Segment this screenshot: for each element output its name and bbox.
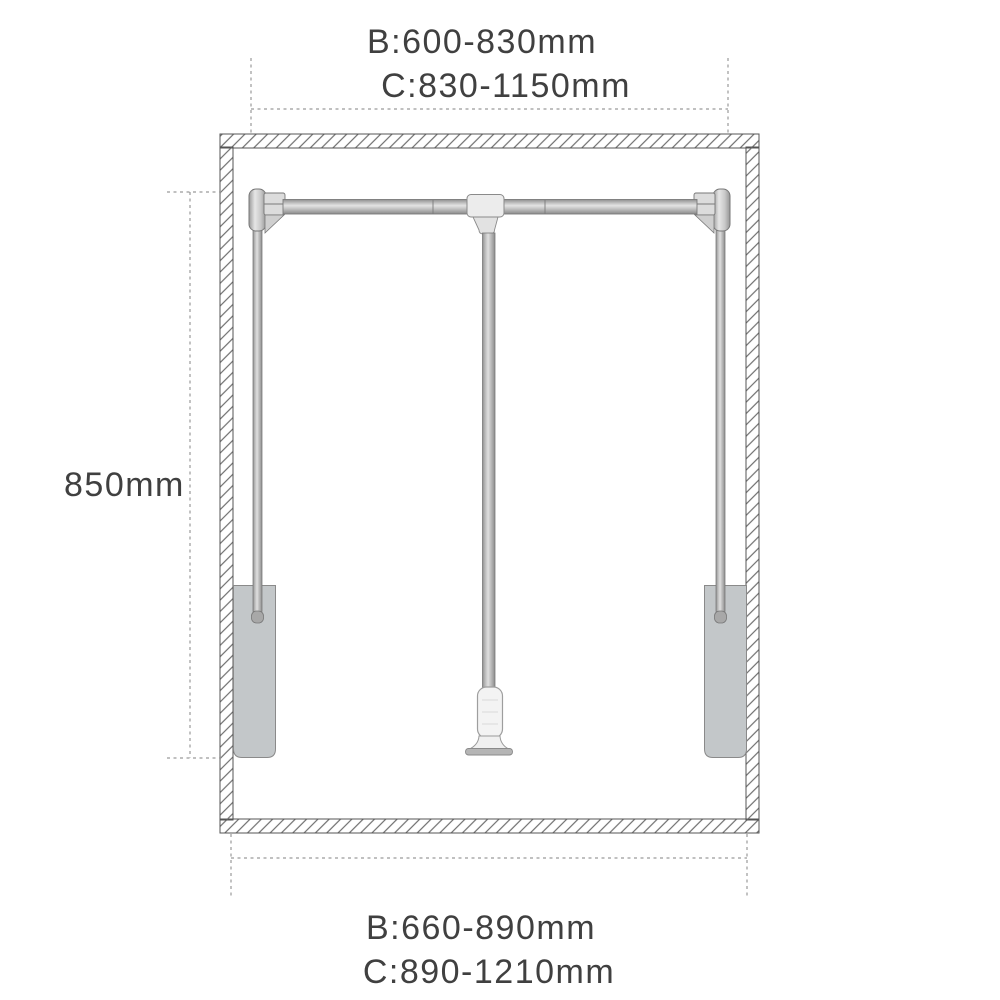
bottom-dimension-label-c: C:890-1210mm <box>363 953 615 991</box>
cabinet-top-wall <box>220 134 759 148</box>
right-bracket-brace <box>695 215 714 233</box>
left-bracket-pivot <box>249 189 266 231</box>
right-lift-panel <box>705 586 747 758</box>
pull-rod <box>483 233 496 689</box>
cabinet-bottom-wall <box>220 819 759 833</box>
right-swing-arm <box>716 226 725 614</box>
wardrobe-lift-diagram-canvas: B:600-830mm C:830-1150mm 850mm B:660-890… <box>0 0 1000 1000</box>
cabinet-left-wall <box>220 147 233 820</box>
cabinet-right-wall <box>746 147 759 820</box>
left-swing-arm <box>253 226 262 614</box>
left-dimension-label: 850mm <box>64 466 185 504</box>
bottom-dimension-label-b: B:660-890mm <box>366 909 596 947</box>
pull-handle <box>466 687 513 755</box>
t-connector <box>467 195 504 235</box>
right-bracket-pivot <box>713 189 730 231</box>
handle-base-disc <box>466 749 513 756</box>
top-dimension-label-c: C:830-1150mm <box>381 67 631 105</box>
top-dimension-label-b: B:600-830mm <box>367 23 597 61</box>
left-bracket-brace <box>265 215 284 233</box>
right-arm-end-cap <box>715 611 727 623</box>
lift-mechanism <box>234 189 747 758</box>
t-connector-block <box>467 195 504 218</box>
handle-flare <box>469 736 510 750</box>
left-arm-end-cap <box>252 611 264 623</box>
left-mounting-bracket <box>249 189 285 233</box>
right-mounting-bracket <box>694 189 730 233</box>
wardrobe-lift-technical-drawing: B:600-830mm C:830-1150mm 850mm B:660-890… <box>0 0 1000 1000</box>
t-connector-taper <box>473 217 498 234</box>
